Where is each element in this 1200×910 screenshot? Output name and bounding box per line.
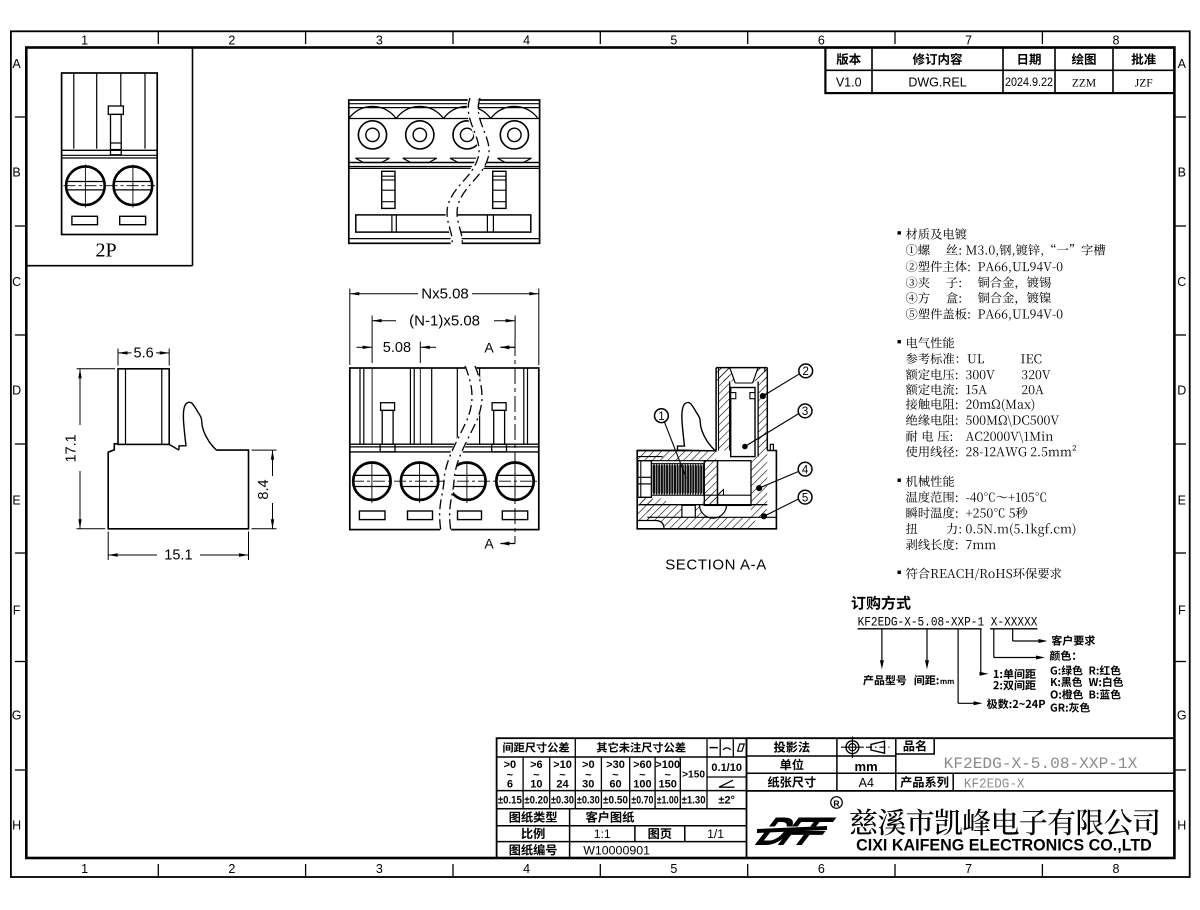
svg-text:24: 24 xyxy=(556,779,569,791)
svg-text:mm: mm xyxy=(855,759,878,774)
svg-text:SECTION A-A: SECTION A-A xyxy=(665,556,767,573)
svg-text:2: 2 xyxy=(802,366,808,378)
svg-text:7: 7 xyxy=(965,34,972,48)
svg-text:150: 150 xyxy=(659,779,677,791)
svg-text:(N-1)x5.08: (N-1)x5.08 xyxy=(409,312,480,329)
svg-text:E: E xyxy=(1178,494,1186,508)
svg-text:DWG.REL: DWG.REL xyxy=(908,75,966,89)
svg-text:8: 8 xyxy=(1113,862,1120,876)
svg-text:±2°: ±2° xyxy=(718,795,735,807)
svg-text:2: 2 xyxy=(228,862,235,876)
svg-text:>150: >150 xyxy=(682,770,705,781)
svg-text:A: A xyxy=(1178,57,1187,71)
svg-text:1: 1 xyxy=(658,411,664,423)
svg-text:5: 5 xyxy=(670,34,677,48)
svg-text:ZZM: ZZM xyxy=(1072,77,1096,89)
svg-text:8.4: 8.4 xyxy=(256,479,272,499)
svg-text:4: 4 xyxy=(523,34,530,48)
svg-text:1: 1 xyxy=(81,34,88,48)
svg-text:B: B xyxy=(12,166,20,180)
svg-text:D: D xyxy=(12,384,21,398)
svg-text:D: D xyxy=(1177,384,1186,398)
svg-text:CIXI KAIFENG ELECTRONICS CO.,L: CIXI KAIFENG ELECTRONICS CO.,LTD xyxy=(856,836,1152,854)
svg-text:100: 100 xyxy=(633,779,651,791)
svg-text:F: F xyxy=(13,604,21,618)
svg-text:±1.30: ±1.30 xyxy=(682,795,706,807)
svg-text:15.1: 15.1 xyxy=(164,548,192,564)
svg-text:±0.30: ±0.30 xyxy=(577,795,600,807)
svg-text:6: 6 xyxy=(818,34,825,48)
svg-text:±0.50: ±0.50 xyxy=(603,795,628,807)
svg-text:4: 4 xyxy=(802,464,809,476)
svg-text:17.1: 17.1 xyxy=(64,434,80,462)
svg-text:30: 30 xyxy=(582,779,594,791)
svg-text:2024.9.22: 2024.9.22 xyxy=(1005,75,1053,89)
svg-text:G: G xyxy=(12,709,22,723)
svg-text:4: 4 xyxy=(523,862,530,876)
svg-text:±1.00: ±1.00 xyxy=(657,795,679,807)
svg-text:1:1: 1:1 xyxy=(594,827,611,841)
svg-text:3: 3 xyxy=(802,406,808,418)
svg-text:H: H xyxy=(12,819,21,833)
svg-text:H: H xyxy=(1177,819,1186,833)
svg-text:KF2EDG-X: KF2EDG-X xyxy=(964,776,1025,792)
svg-text:0.1/10: 0.1/10 xyxy=(711,762,742,774)
svg-text:B: B xyxy=(1178,166,1186,180)
svg-text:KF2EDG-X-5.08-XXP-1X: KF2EDG-X-5.08-XXP-1X xyxy=(944,755,1138,773)
svg-text:JZF: JZF xyxy=(1135,77,1153,89)
svg-text:Nx5.08: Nx5.08 xyxy=(421,285,469,302)
svg-text:A: A xyxy=(12,57,21,71)
svg-text:1/1: 1/1 xyxy=(707,827,724,841)
svg-text:8: 8 xyxy=(1113,34,1120,48)
svg-text:V1.0: V1.0 xyxy=(836,75,862,89)
svg-text:2P: 2P xyxy=(95,240,116,262)
svg-text:C: C xyxy=(12,275,21,289)
svg-text:A: A xyxy=(484,339,494,355)
svg-text:10: 10 xyxy=(530,779,542,791)
svg-text:7: 7 xyxy=(965,862,972,876)
svg-text:5: 5 xyxy=(670,862,677,876)
svg-text:E: E xyxy=(12,494,20,508)
svg-text:3: 3 xyxy=(376,862,383,876)
svg-text:6: 6 xyxy=(818,862,825,876)
svg-text:W10000901: W10000901 xyxy=(583,843,650,857)
svg-text:C: C xyxy=(1177,275,1186,289)
svg-text:1: 1 xyxy=(81,862,88,876)
svg-text:±0.15: ±0.15 xyxy=(498,795,522,807)
svg-text:±0.30: ±0.30 xyxy=(551,795,574,807)
svg-text:5.6: 5.6 xyxy=(134,345,154,361)
svg-text:A4: A4 xyxy=(859,776,874,790)
svg-text:2: 2 xyxy=(228,34,235,48)
svg-text:6: 6 xyxy=(507,779,513,791)
svg-text:KF2EDG-X-5.08-XXP-1 X-XXXXX: KF2EDG-X-5.08-XXP-1 X-XXXXX xyxy=(858,615,1038,630)
svg-text:F: F xyxy=(1178,604,1186,618)
svg-text:5.08: 5.08 xyxy=(383,340,411,356)
svg-text:R: R xyxy=(833,798,839,808)
svg-text:60: 60 xyxy=(609,779,621,791)
svg-text:±0.70: ±0.70 xyxy=(631,795,653,807)
svg-text:±0.20: ±0.20 xyxy=(524,795,548,807)
svg-text:3: 3 xyxy=(376,34,383,48)
svg-text:A: A xyxy=(484,536,494,552)
svg-text:5: 5 xyxy=(802,492,808,504)
svg-text:G: G xyxy=(1177,709,1187,723)
